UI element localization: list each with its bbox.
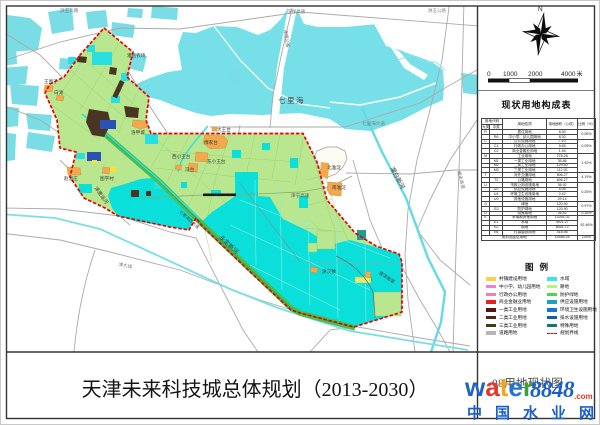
svg-text:大王台: 大王台 [217,126,231,133]
svg-text:0: 0 [487,71,491,78]
svg-text:图字村: 图字村 [100,175,114,182]
svg-text:N: N [538,6,543,13]
svg-text:西小王台: 西小王台 [172,153,191,160]
svg-text:滨玉公路: 滨玉公路 [60,7,79,14]
svg-text:潘岳农场: 潘岳农场 [127,52,146,59]
svg-text:北淮淀: 北淮淀 [327,164,341,171]
svg-text:淋玉公路: 淋玉公路 [428,7,446,14]
svg-text:南淮淀: 南淮淀 [332,184,346,191]
svg-text:2000: 2000 [528,71,543,78]
svg-text:七里海: 七里海 [278,95,305,105]
svg-text:白滩: 白滩 [54,89,64,96]
svg-text:1000: 1000 [503,71,518,78]
svg-text:洛甲城: 洛甲城 [131,129,145,136]
svg-text:冯台: 冯台 [185,166,195,173]
svg-text:傅家台: 傅家台 [204,139,218,146]
svg-text:米: 米 [577,70,583,78]
svg-text:赵温庄: 赵温庄 [64,175,78,182]
svg-text:滨保高速: 滨保高速 [287,8,306,15]
svg-text:4000: 4000 [561,71,576,78]
svg-text:七里海大道: 七里海大道 [362,120,385,127]
svg-text:东小王台: 东小王台 [207,158,226,165]
svg-text:王围子: 王围子 [44,78,58,85]
svg-text:津宁高速: 津宁高速 [291,192,310,199]
svg-text:津汉镇: 津汉镇 [322,268,336,275]
